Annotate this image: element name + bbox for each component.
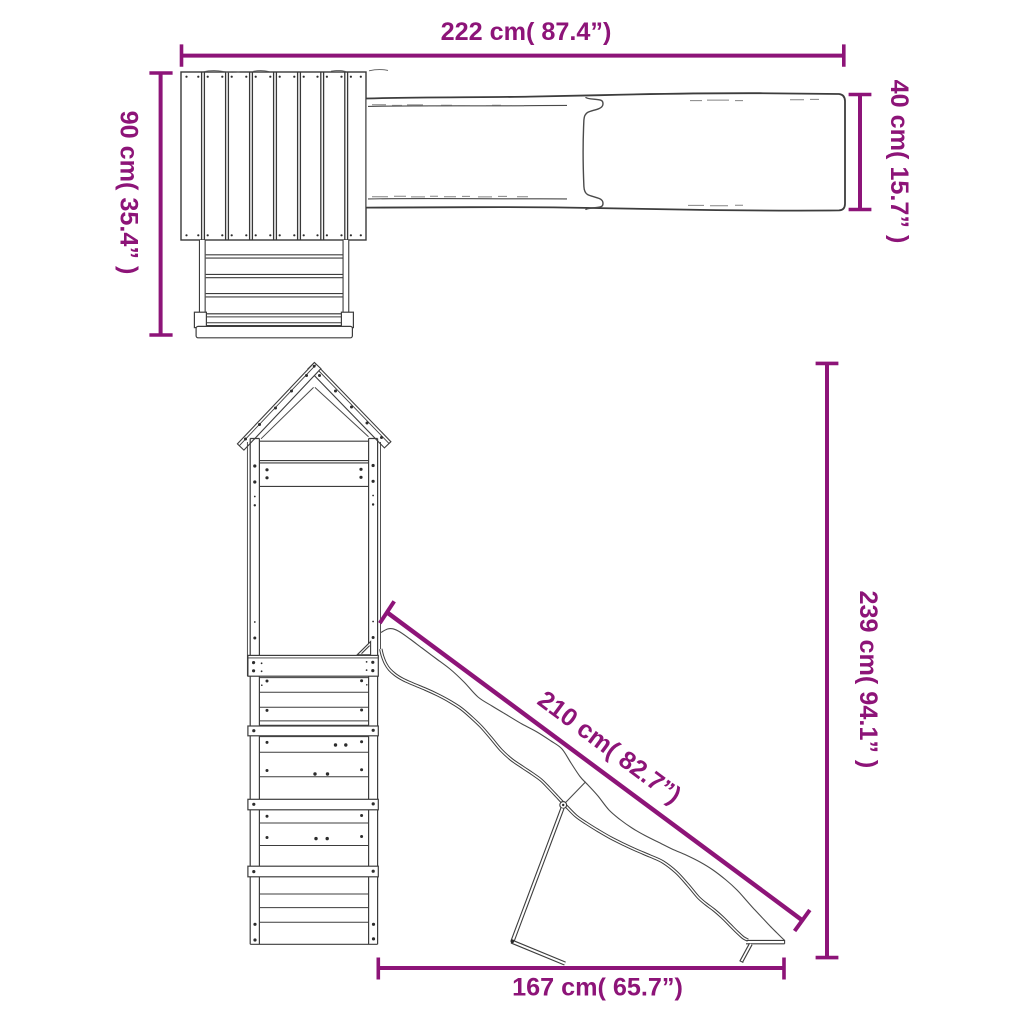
svg-text:167 cm( 65.7”): 167 cm( 65.7”) [512, 974, 683, 1002]
svg-text:90 cm( 35.4” ): 90 cm( 35.4” ) [114, 111, 142, 275]
svg-text:40 cm( 15.7” ): 40 cm( 15.7” ) [885, 80, 913, 244]
svg-text:210 cm( 82.7”): 210 cm( 82.7”) [532, 685, 686, 809]
svg-text:222 cm( 87.4”): 222 cm( 87.4”) [441, 18, 612, 46]
svg-text:239 cm( 94.1” ): 239 cm( 94.1” ) [854, 590, 882, 768]
